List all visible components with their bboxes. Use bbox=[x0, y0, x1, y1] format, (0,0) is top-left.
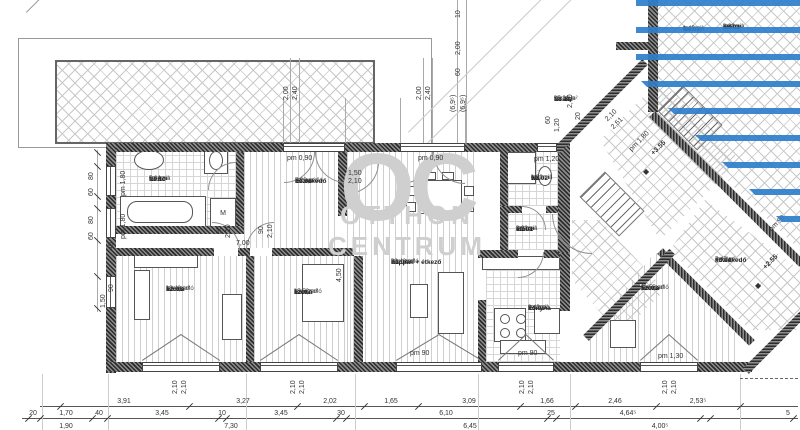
dimension-label: 2,10 bbox=[528, 380, 535, 394]
dimension-label: 1,20 bbox=[554, 118, 561, 132]
dimension-label: 1,50 bbox=[348, 170, 362, 177]
wall bbox=[236, 152, 244, 232]
dimension-label: 2,10 bbox=[519, 380, 526, 394]
dimension-line bbox=[400, 98, 401, 143]
dimension-label: 90 bbox=[108, 284, 115, 292]
dimension-value: 40 bbox=[95, 410, 103, 417]
room-area: 15,53 m² bbox=[294, 289, 318, 296]
dimension-label: 80 bbox=[88, 172, 95, 180]
room-area: 7,47 m² bbox=[715, 257, 735, 264]
elevation-marker: ◆ bbox=[643, 168, 649, 176]
dimension-value: 1,66 bbox=[540, 398, 554, 405]
room-label-e3-05: E3.05konyhakerámia9,43 m² bbox=[527, 304, 529, 306]
dresser bbox=[222, 294, 242, 340]
dimension-line bbox=[97, 150, 98, 312]
dimension-value: 6,45 bbox=[463, 423, 477, 430]
dimension-line bbox=[290, 58, 291, 143]
dimension-value: 1,65 bbox=[384, 398, 398, 405]
dimension-value: 1,70 bbox=[59, 410, 73, 417]
window bbox=[106, 166, 116, 196]
dimension-value: 3,45 bbox=[274, 410, 288, 417]
wall bbox=[354, 256, 363, 362]
dimension-value: 2,53⁵ bbox=[690, 398, 707, 405]
dimension-line bbox=[22, 418, 798, 419]
sink bbox=[134, 150, 164, 170]
dimension-label: 2,10 bbox=[290, 380, 297, 394]
dimension-label: 10 bbox=[455, 10, 462, 18]
dimension-label: (6,9⁵) bbox=[450, 95, 457, 112]
chair bbox=[406, 202, 416, 212]
dimension-line bbox=[423, 58, 424, 143]
dimension-value: 4,00⁵ bbox=[652, 423, 669, 430]
dimension-line bbox=[108, 374, 109, 430]
sofa bbox=[438, 272, 464, 334]
dimension-value: 3,27 bbox=[236, 398, 250, 405]
dimension-line bbox=[432, 58, 433, 143]
room-area: 5,64 m² bbox=[149, 176, 169, 183]
window-door bbox=[498, 362, 554, 372]
dimension-line bbox=[283, 98, 284, 143]
cabinet bbox=[610, 320, 636, 348]
window-door bbox=[142, 362, 220, 372]
dimension-label: 60 bbox=[455, 68, 462, 76]
wall bbox=[478, 300, 486, 362]
dimension-value: 3,09 bbox=[462, 398, 476, 405]
dimension-label: 2,10 bbox=[348, 178, 362, 185]
dimension-label: 2,00 bbox=[455, 41, 462, 55]
room-label-e3-03: E3.03szobalam. padló11,55 m² bbox=[640, 284, 642, 286]
dimension-label: 2,10 bbox=[181, 380, 188, 394]
dimension-label: 2,10 bbox=[662, 380, 669, 394]
wall bbox=[560, 253, 570, 311]
dimension-value: 2,02 bbox=[323, 398, 337, 405]
room-area: 7,28 m² bbox=[295, 178, 315, 185]
dimension-line bbox=[42, 374, 43, 430]
dimension-label: pm 1,20 bbox=[534, 156, 559, 163]
room-label-f3-01: F3.01közlekedőgreslap7,47 m² bbox=[714, 256, 716, 258]
dimension-label: 2,40 bbox=[292, 86, 299, 100]
room-area: 1,39 m² bbox=[531, 175, 551, 182]
dimension-label: 40 bbox=[108, 242, 115, 250]
dimension-value: 2,46 bbox=[608, 398, 622, 405]
window bbox=[106, 208, 116, 238]
dimension-value: 1,90 bbox=[59, 423, 73, 430]
dimension-label: 7,00 bbox=[236, 240, 250, 247]
dimension-line bbox=[299, 58, 300, 143]
dimension-line bbox=[478, 374, 479, 430]
bed bbox=[134, 254, 198, 268]
room-area: 20,42 m² bbox=[391, 259, 415, 266]
dimension-label: 2,10 bbox=[225, 224, 232, 238]
dimension-value: 4,64⁵ bbox=[620, 410, 637, 417]
dimension-label: 60 bbox=[545, 116, 552, 124]
dimension-label: 1,50 bbox=[100, 294, 107, 308]
dining-table bbox=[418, 180, 462, 214]
floor-plan: OC OTTHON CENTRUM ME3.11teraszkerámia25,… bbox=[0, 0, 800, 430]
wall bbox=[500, 143, 508, 211]
coffee-table bbox=[410, 284, 428, 318]
room-label-e3-01: E3.01előtérkerámia2,92 m² bbox=[515, 225, 517, 227]
dimension-line bbox=[345, 98, 346, 143]
window bbox=[106, 276, 116, 308]
dimension-label: 2,00 bbox=[283, 86, 290, 100]
dimension-label: 80 bbox=[88, 216, 95, 224]
elevation-marker: ◆ bbox=[755, 282, 761, 290]
room-label-e3-02: E3.02wckerámia1,39 m² bbox=[530, 174, 532, 176]
wall bbox=[272, 248, 354, 256]
window-door bbox=[640, 362, 698, 372]
dimension-value: 6,10 bbox=[439, 410, 453, 417]
room-label-e3-11: E3.11teraszkerámia25,31 m² bbox=[553, 95, 555, 97]
wall bbox=[478, 250, 518, 258]
dimension-label: 90 bbox=[216, 226, 223, 234]
chair bbox=[424, 172, 436, 180]
room-label-e3-08: E3.08szobalam. padló13,40 m² bbox=[165, 285, 167, 287]
stove-burner bbox=[500, 314, 510, 324]
dimension-value: 3,91 bbox=[117, 398, 131, 405]
chair bbox=[464, 186, 474, 196]
room-area: 9,43 m² bbox=[528, 305, 548, 312]
dimension-label: pm 1,30 bbox=[658, 353, 683, 360]
dimension-line bbox=[355, 374, 356, 430]
dimension-label: pm 90 bbox=[410, 350, 429, 357]
chair bbox=[406, 186, 416, 196]
dimension-label: pm 0,90 bbox=[418, 155, 443, 162]
wall bbox=[246, 256, 254, 362]
window-door bbox=[396, 362, 482, 372]
dimension-value: 5 bbox=[786, 410, 790, 417]
hidden-edge-line bbox=[740, 378, 798, 379]
dimension-label: 90 bbox=[258, 226, 265, 234]
dimension-label: 2,40 bbox=[425, 86, 432, 100]
dimension-label: 2,40 bbox=[567, 94, 574, 108]
dimension-label: 2,10 bbox=[299, 380, 306, 394]
wardrobe bbox=[134, 270, 150, 320]
bathtub bbox=[127, 201, 193, 223]
dimension-label: 2,10 bbox=[267, 224, 274, 238]
terrace-paving bbox=[55, 60, 375, 144]
dimension-label: 2,10 bbox=[671, 380, 678, 394]
projection-line bbox=[26, 0, 56, 13]
dimension-label: 4,50 bbox=[336, 268, 343, 282]
room-label-e3-06: E3.06közlekedőlam. padló7,28 m² bbox=[294, 177, 296, 179]
stove-burner bbox=[516, 314, 526, 324]
dimension-label: pm 1,80 bbox=[120, 214, 127, 239]
room-area: 25,31 m² bbox=[554, 96, 578, 103]
window-door bbox=[260, 362, 338, 372]
dimension-value: 3,45 bbox=[155, 410, 169, 417]
dimension-line bbox=[570, 374, 571, 430]
chair bbox=[464, 202, 474, 212]
window bbox=[400, 143, 465, 152]
room-area: 2,92 m² bbox=[516, 226, 536, 233]
stove-burner bbox=[500, 328, 510, 338]
wall bbox=[116, 248, 214, 256]
room-label-e3-07: E3.07szobalam. padló15,53 m² bbox=[293, 288, 295, 290]
dimension-label: pm 90 bbox=[518, 350, 537, 357]
dimension-value: 7,30 bbox=[224, 423, 238, 430]
window bbox=[537, 143, 557, 152]
wall bbox=[500, 206, 522, 213]
room-area: 11,55 m² bbox=[641, 285, 664, 292]
dimension-label: 2,00 bbox=[416, 86, 423, 100]
dimension-label: 2,10 bbox=[172, 380, 179, 394]
room-label-e3-04: E3.04nappali + étkezőlam. padló20,42 m² bbox=[390, 258, 392, 260]
dimension-label: 20 bbox=[575, 112, 582, 120]
window bbox=[283, 143, 345, 152]
dimension-label: pm 1,80 bbox=[120, 171, 127, 196]
dimension-line bbox=[740, 374, 741, 430]
dimension-label: (6,9⁵) bbox=[460, 95, 467, 112]
room-label-e3-10: E3.10fürdőkerámia5,64 m² bbox=[148, 175, 150, 177]
room-area: 13,40 m² bbox=[166, 286, 190, 293]
dimension-label: pm 0,90 bbox=[287, 155, 312, 162]
